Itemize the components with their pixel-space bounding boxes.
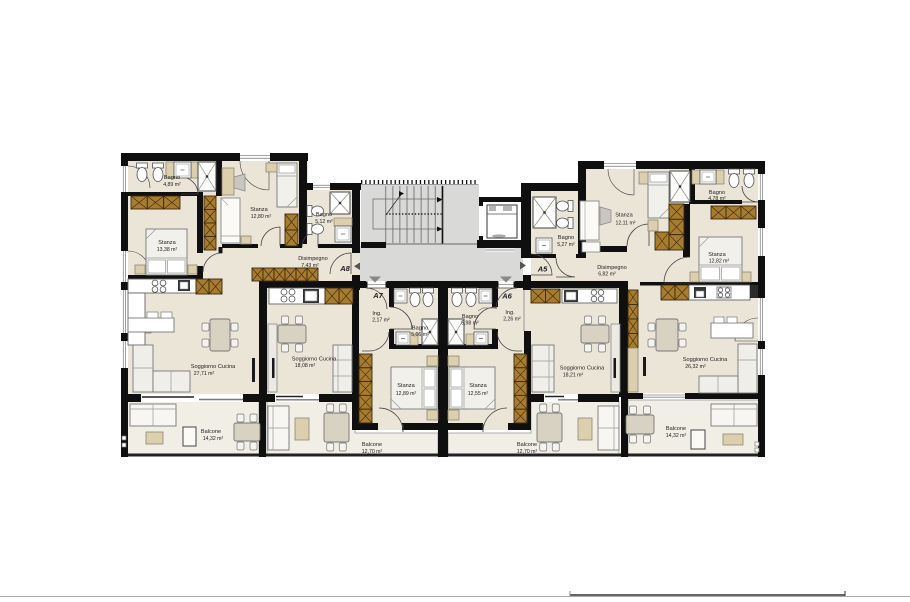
svg-text:Balcone: Balcone [201,429,221,435]
svg-text:A7: A7 [372,291,383,300]
svg-text:12,89 m²: 12,89 m² [396,391,417,397]
svg-text:Soggiorno Cucina: Soggiorno Cucina [683,357,728,363]
svg-text:Soggiorno Cucina: Soggiorno Cucina [191,364,236,370]
svg-text:18,08 m²: 18,08 m² [295,363,316,369]
svg-text:Ing.: Ing. [372,311,382,317]
svg-text:6,82 m²: 6,82 m² [598,272,616,278]
svg-text:12,70 m²: 12,70 m² [517,449,538,455]
svg-text:12,70 m²: 12,70 m² [362,449,383,455]
svg-text:Balcone: Balcone [362,442,382,448]
svg-text:Stanza: Stanza [708,252,726,258]
svg-text:Disimpegno: Disimpegno [597,265,627,271]
svg-text:13,38 m²: 13,38 m² [157,247,178,253]
svg-text:5,06 m²: 5,06 m² [411,332,429,338]
svg-text:Bagno: Bagno [462,314,478,320]
svg-text:12,82 m²: 12,82 m² [709,259,730,265]
svg-text:A8: A8 [339,264,350,273]
svg-text:12,11 m²: 12,11 m² [615,221,635,227]
svg-text:4,89 m²: 4,89 m² [163,182,181,188]
svg-text:14,32 m²: 14,32 m² [666,433,687,439]
svg-text:Stanza: Stanza [469,383,487,389]
svg-text:26,32 m²: 26,32 m² [685,364,706,370]
svg-text:5,12 m²: 5,12 m² [315,219,333,225]
svg-text:Balcone: Balcone [666,426,686,432]
svg-text:5,27 m²: 5,27 m² [557,242,575,248]
svg-text:7,43 m²: 7,43 m² [301,263,319,269]
svg-text:A6: A6 [501,292,512,301]
svg-text:27,71 m²: 27,71 m² [194,371,215,377]
svg-text:Balcone: Balcone [517,442,537,448]
svg-text:A5: A5 [537,265,548,274]
svg-text:Ing.: Ing. [505,310,515,316]
svg-text:5,98 m²: 5,98 m² [461,321,479,327]
svg-text:12,80 m²: 12,80 m² [251,214,272,220]
svg-text:Bagno: Bagno [412,326,428,332]
svg-text:Soggiorno Cucina: Soggiorno Cucina [292,357,337,363]
svg-text:Bagno: Bagno [316,212,332,218]
svg-text:Bagno: Bagno [164,175,180,181]
svg-text:Stanza: Stanza [250,207,268,213]
svg-text:Bagno: Bagno [558,235,574,241]
svg-text:12,55 m²: 12,55 m² [468,391,489,397]
svg-text:2,17 m²: 2,17 m² [372,318,390,324]
svg-text:Soggiorno Cucina: Soggiorno Cucina [560,366,605,372]
svg-text:Stanza: Stanza [397,383,415,389]
svg-text:18,21 m²: 18,21 m² [563,373,584,379]
svg-text:Disimpegno: Disimpegno [298,256,328,262]
svg-text:Stanza: Stanza [158,240,176,246]
svg-text:Stanza: Stanza [615,213,633,219]
svg-text:14,32 m²: 14,32 m² [203,436,224,442]
svg-text:4,78 m²: 4,78 m² [708,196,726,202]
svg-text:2,26 m²: 2,26 m² [503,316,521,322]
